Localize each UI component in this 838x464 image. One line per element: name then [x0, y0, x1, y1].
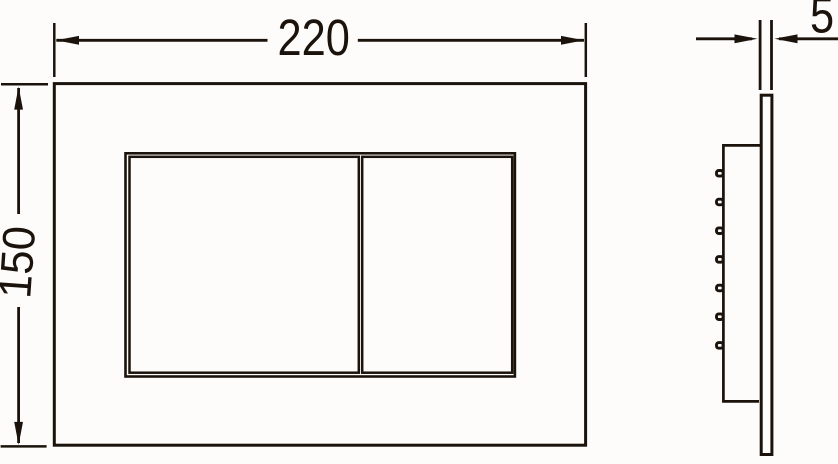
svg-text:150: 150: [0, 225, 45, 300]
svg-text:220: 220: [278, 10, 350, 67]
svg-text:5: 5: [810, 0, 834, 44]
